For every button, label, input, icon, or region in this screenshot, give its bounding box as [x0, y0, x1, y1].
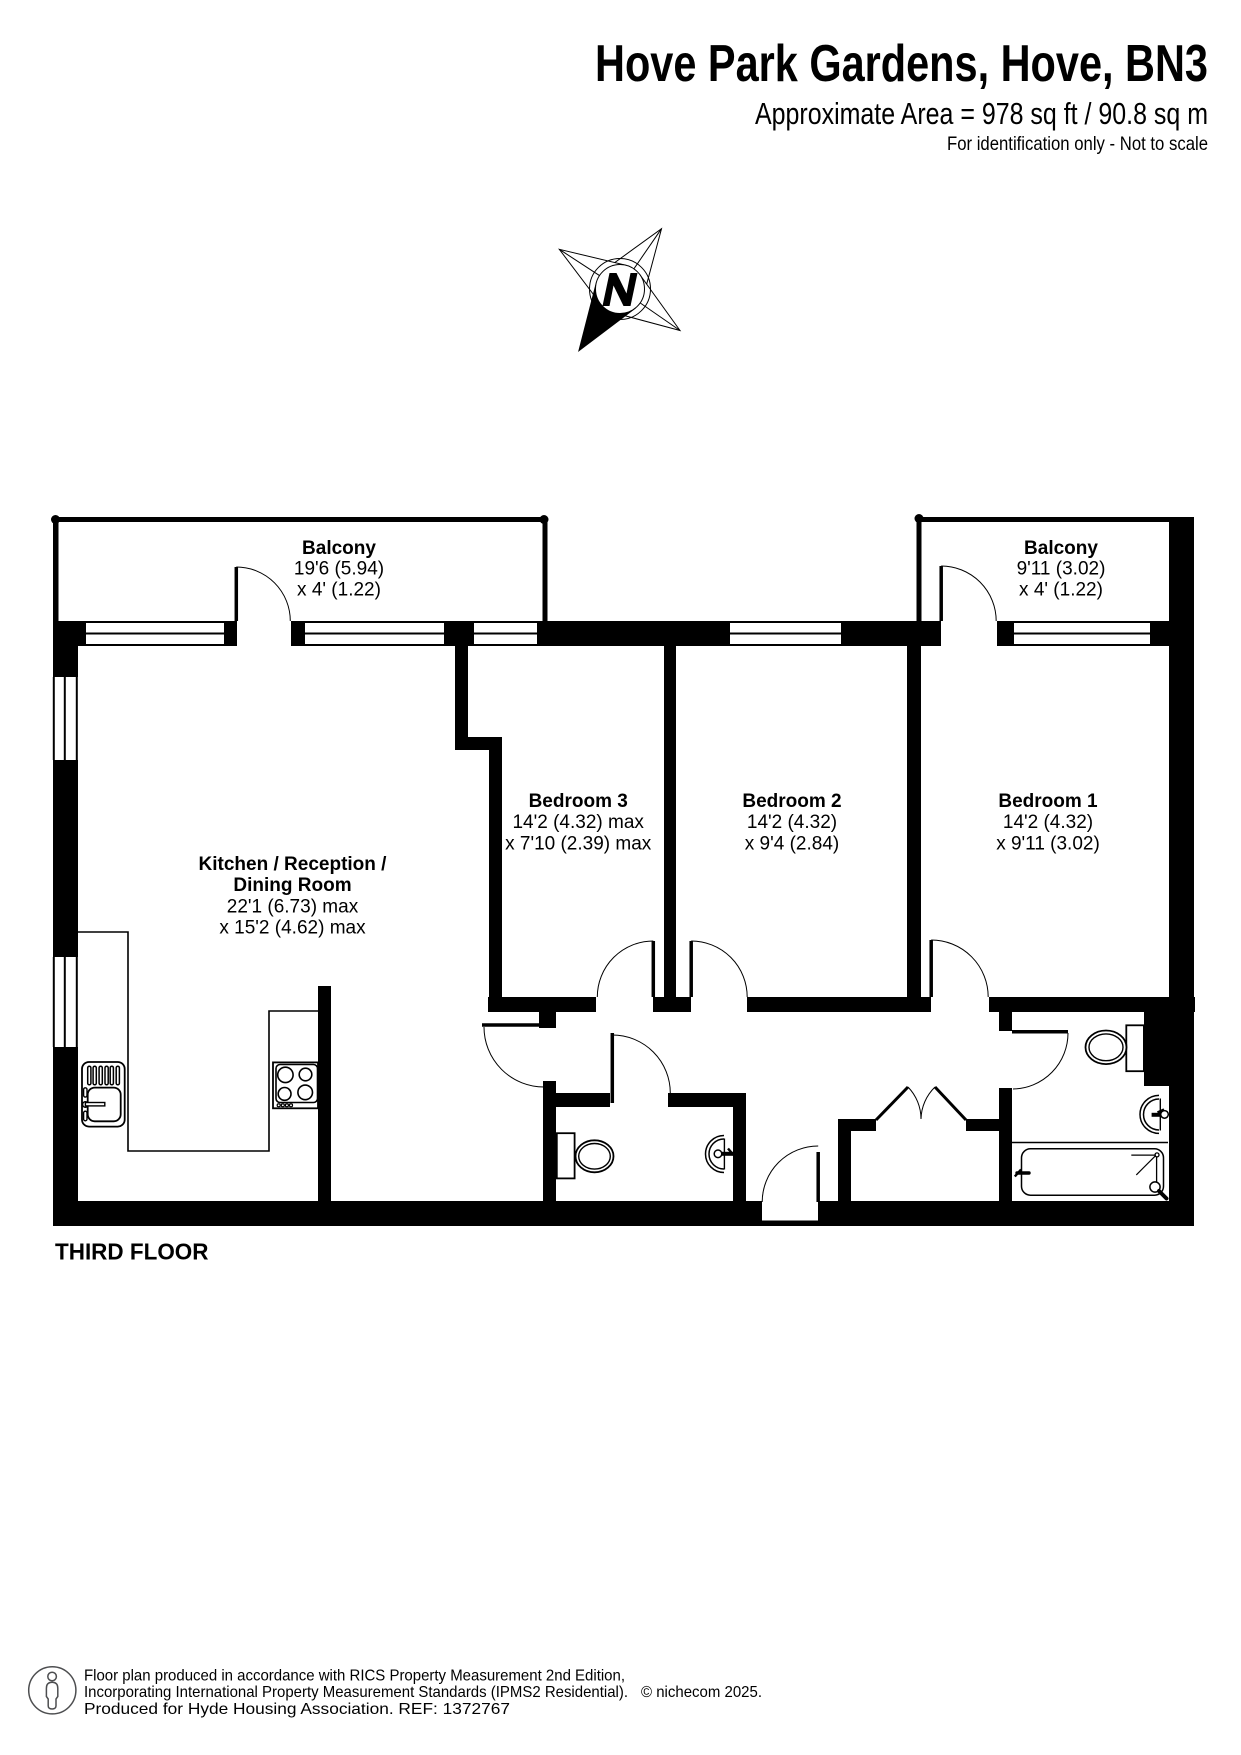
- svg-text:For identification only - Not: For identification only - Not to scale: [947, 133, 1208, 155]
- svg-text:Bedroom 3: Bedroom 3: [529, 791, 628, 812]
- svg-text:14'2 (4.32): 14'2 (4.32): [1003, 812, 1093, 833]
- svg-text:Balcony: Balcony: [1024, 538, 1098, 559]
- svg-text:Bedroom 2: Bedroom 2: [742, 791, 841, 812]
- svg-text:x 4' (1.22): x 4' (1.22): [1019, 580, 1103, 601]
- svg-text:14'2 (4.32) max: 14'2 (4.32) max: [512, 812, 644, 833]
- svg-text:Hove Park Gardens, Hove, BN3: Hove Park Gardens, Hove, BN3: [595, 35, 1208, 93]
- svg-text:Kitchen / Reception /: Kitchen / Reception /: [199, 854, 388, 875]
- svg-text:THIRD FLOOR: THIRD FLOOR: [55, 1239, 209, 1265]
- svg-text:Produced for Hyde Housing Asso: Produced for Hyde Housing Association. R…: [84, 1701, 510, 1718]
- svg-text:19'6 (5.94): 19'6 (5.94): [294, 559, 384, 580]
- svg-text:14'2 (4.32): 14'2 (4.32): [747, 812, 837, 833]
- svg-text:x 9'4 (2.84): x 9'4 (2.84): [745, 833, 839, 854]
- svg-text:x 15'2 (4.62) max: x 15'2 (4.62) max: [219, 918, 366, 939]
- svg-text:x 7'10 (2.39) max: x 7'10 (2.39) max: [505, 833, 652, 854]
- svg-text:9'11 (3.02): 9'11 (3.02): [1017, 559, 1106, 580]
- svg-text:Floor plan produced in accorda: Floor plan produced in accordance with R…: [84, 1668, 625, 1685]
- svg-text:x 4' (1.22): x 4' (1.22): [297, 580, 381, 601]
- svg-text:Approximate Area = 978 sq ft /: Approximate Area = 978 sq ft / 90.8 sq m: [755, 96, 1208, 131]
- svg-text:Incorporating International Pr: Incorporating International Property Mea…: [84, 1684, 628, 1701]
- svg-text:Balcony: Balcony: [302, 538, 376, 559]
- svg-text:Bedroom 1: Bedroom 1: [998, 791, 1098, 812]
- svg-text:Dining Room: Dining Room: [233, 875, 351, 896]
- svg-text:22'1 (6.73) max: 22'1 (6.73) max: [227, 896, 359, 917]
- svg-text:© nichecom 2025.: © nichecom 2025.: [641, 1684, 762, 1701]
- svg-text:x 9'11 (3.02): x 9'11 (3.02): [996, 833, 1100, 854]
